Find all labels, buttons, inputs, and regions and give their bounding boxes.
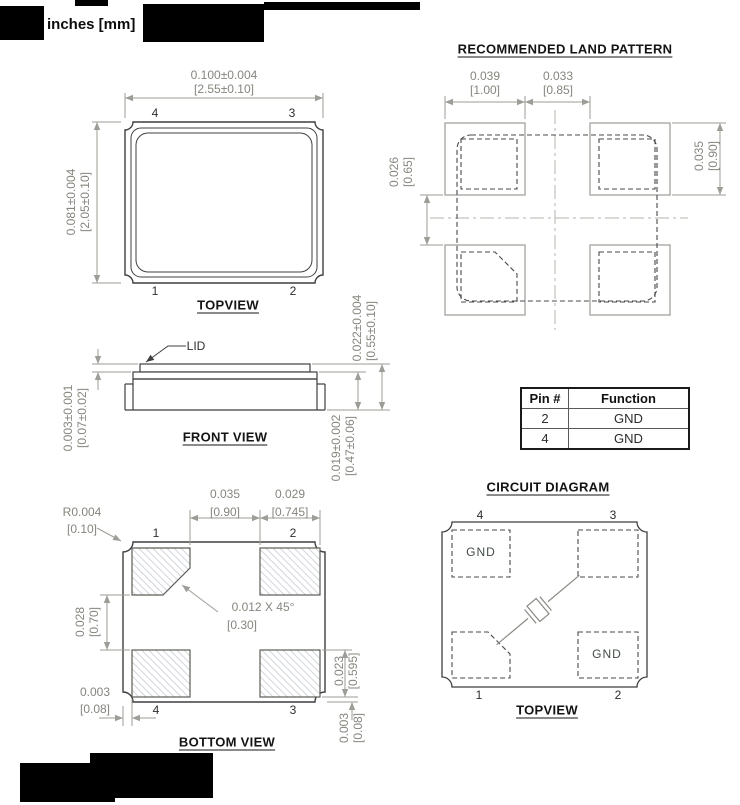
land-pad-width-in: 0.039 — [470, 70, 500, 82]
bottom-view-title: BOTTOM VIEW — [179, 736, 275, 749]
bottom-vgap-mm: [0.70] — [88, 607, 100, 637]
top-view-drawing — [92, 93, 323, 283]
front-body-dim-in: 0.019±0.002 — [330, 415, 342, 482]
topview-height-dim-mm: [2.05±0.10] — [79, 172, 91, 232]
bottomview-pin-1: 1 — [153, 527, 160, 539]
pin-function: GND — [569, 429, 690, 450]
units-label: inches [mm] — [47, 16, 135, 33]
redaction-top-sliver — [75, 0, 108, 6]
bottom-chamfer-mm: [0.30] — [227, 619, 257, 631]
bottomview-pin-3: 3 — [290, 704, 297, 716]
topview-pin-4: 4 — [152, 107, 159, 119]
front-view-drawing — [92, 346, 390, 410]
pin-function-table: Pin # Function 2 GND 4 GND — [520, 387, 690, 450]
pad-2 — [260, 548, 320, 595]
bottom-edge-br-in: 0.003 — [338, 713, 350, 743]
front-total-dim-in: 0.022±0.004 — [351, 295, 363, 362]
bottom-radius-mm: [0.10] — [67, 523, 97, 535]
circuit-pin-1: 1 — [476, 689, 483, 701]
pin-header: Pin # — [521, 388, 569, 409]
bottom-gap-in: 0.035 — [210, 488, 240, 500]
topview-width-dim-in: 0.100±0.004 — [191, 69, 258, 81]
front-body-dim-mm: [0.47±0.06] — [344, 416, 356, 476]
circuit-gnd-label-br: GND — [592, 648, 622, 660]
circuit-pin-2: 2 — [615, 689, 622, 701]
topview-title: TOPVIEW — [197, 299, 259, 312]
bottom-vgap-in: 0.028 — [74, 607, 86, 637]
radius-leader — [97, 528, 121, 541]
circuit-title: CIRCUIT DIAGRAM — [487, 481, 610, 494]
bottom-pad-width-mm: [0.745] — [272, 506, 309, 518]
bottom-radius-in: R0.004 — [63, 506, 102, 518]
bottom-gap-mm: [0.90] — [210, 506, 240, 518]
redaction-title — [143, 4, 264, 42]
front-lid-dim-mm: [0.07±0.02] — [76, 388, 88, 448]
bottom-pad-height-mm: [0.595] — [347, 653, 359, 690]
land-pad-height-mm: [0.90] — [707, 141, 719, 171]
front-lid-dim-in: 0.003±0.001 — [62, 385, 74, 452]
circuit-pin-3: 3 — [610, 509, 617, 521]
bottom-edge-br-mm: [0.08] — [352, 713, 364, 743]
circuit-gnd-label-tl: GND — [466, 546, 496, 558]
redaction-top-bar — [264, 2, 420, 10]
bottom-chamfer-in: 0.012 X 45° — [232, 601, 295, 613]
table-row: 4 GND — [521, 429, 689, 450]
lid-leader — [146, 346, 186, 362]
circuit-pin-4: 4 — [477, 509, 484, 521]
front-total-dim-mm: [0.55±0.10] — [365, 301, 377, 361]
land-pad-width-mm: [1.00] — [470, 84, 500, 96]
land-gap-mm: [0.85] — [543, 84, 573, 96]
bottom-pad-height-in: 0.023 — [333, 656, 345, 686]
datasheet-page: inches [mm] 0.100±0.004 [2.55±0.10] 0.08… — [0, 0, 740, 805]
pin-function: GND — [569, 409, 690, 429]
bottom-pad-width-in: 0.029 — [275, 488, 305, 500]
land-vgap-mm: [0.65] — [402, 157, 414, 187]
topview-width-dim-mm: [2.55±0.10] — [194, 83, 254, 95]
bottom-edge-bl-in: 0.003 — [80, 686, 110, 698]
land-gap-in: 0.033 — [543, 70, 573, 82]
land-vgap-in: 0.026 — [388, 157, 400, 187]
circuit-subtitle: TOPVIEW — [516, 704, 578, 717]
topview-pin-2: 2 — [290, 285, 297, 297]
land-pad-height-in: 0.035 — [693, 141, 705, 171]
bottom-edge-bl-mm: [0.08] — [80, 703, 110, 715]
land-pattern-drawing — [420, 96, 726, 330]
land-pads — [445, 123, 670, 315]
pad-3 — [260, 650, 320, 697]
front-view-title: FRONT VIEW — [183, 431, 268, 444]
topview-pin-1: 1 — [152, 285, 159, 297]
table-header-row: Pin # Function — [521, 388, 689, 409]
redaction-footer-2 — [20, 763, 115, 802]
bottomview-pin-2: 2 — [290, 527, 297, 539]
redaction-logo — [0, 6, 44, 40]
function-header: Function — [569, 388, 690, 409]
table-row: 2 GND — [521, 409, 689, 429]
pin-number: 4 — [521, 429, 569, 450]
bottomview-pin-4: 4 — [153, 704, 160, 716]
pin-number: 2 — [521, 409, 569, 429]
topview-height-dim-in: 0.081±0.004 — [65, 169, 77, 236]
lid-label: LID — [187, 340, 206, 352]
land-pattern-title: RECOMMENDED LAND PATTERN — [458, 43, 673, 56]
topview-pin-3: 3 — [289, 107, 296, 119]
pad-4 — [132, 650, 190, 697]
